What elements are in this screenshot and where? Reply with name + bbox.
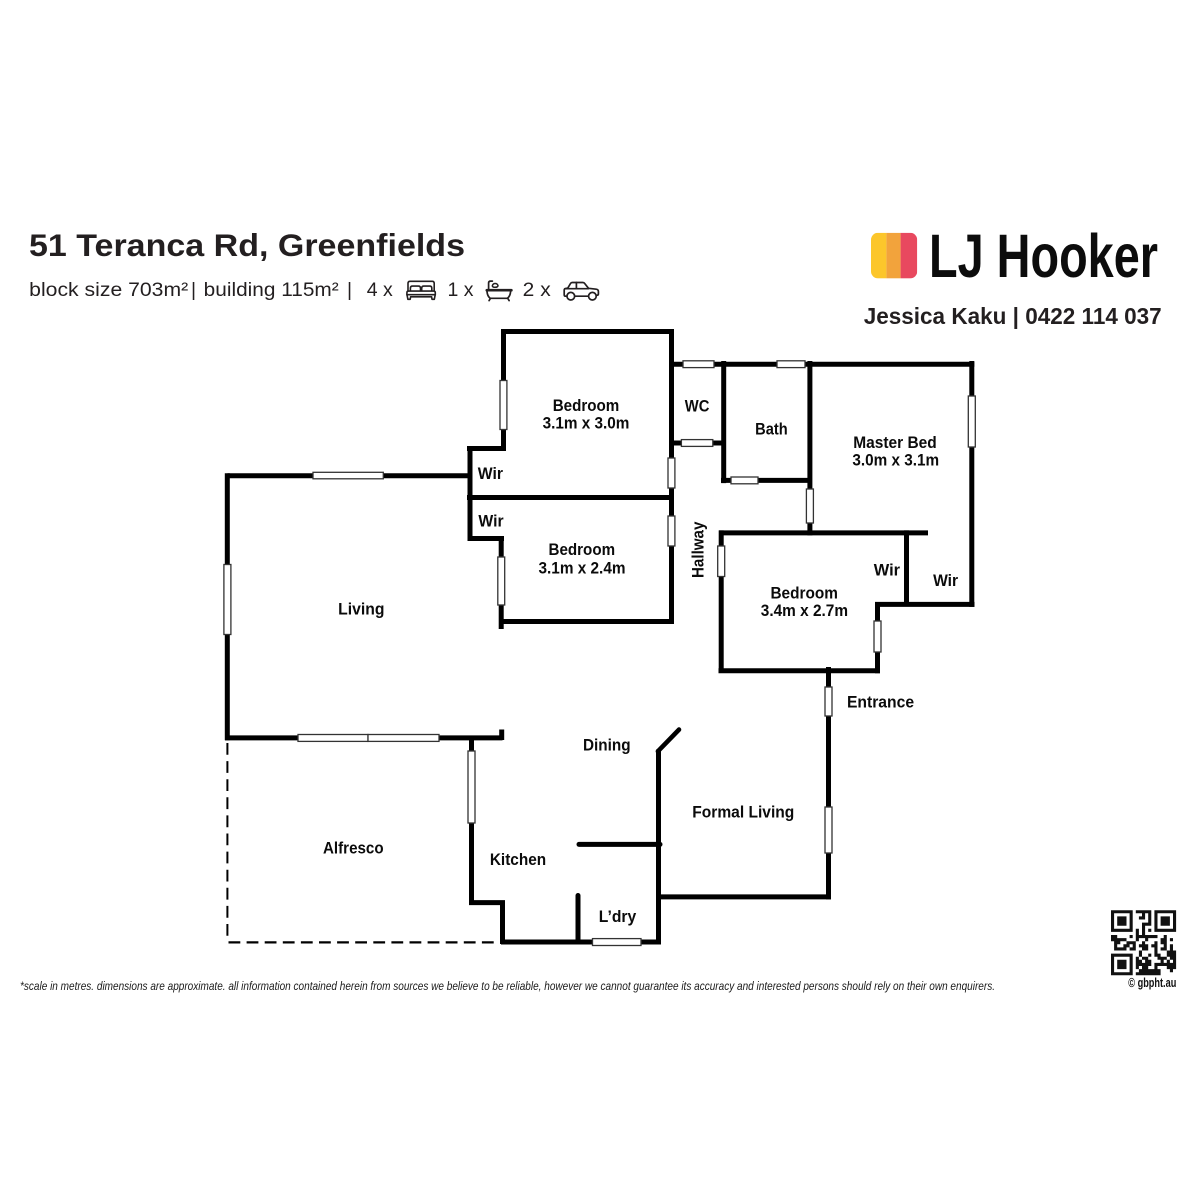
svg-text:Entrance: Entrance [847, 693, 914, 712]
svg-text:51 Teranca Rd, Greenfields: 51 Teranca Rd, Greenfields [29, 227, 465, 263]
svg-text:Wir: Wir [874, 561, 901, 580]
svg-text:2 x: 2 x [523, 279, 551, 301]
svg-text:Kitchen: Kitchen [490, 850, 546, 869]
svg-text:Jessica Kaku | 0422 114 037: Jessica Kaku | 0422 114 037 [864, 303, 1162, 329]
svg-text:Hallway: Hallway [688, 521, 707, 578]
svg-text:Bedroom: Bedroom [553, 396, 620, 415]
svg-text:Bedroom: Bedroom [770, 583, 838, 602]
svg-text:Alfresco: Alfresco [323, 838, 384, 857]
svg-text:3.0m x 3.1m: 3.0m x 3.1m [852, 450, 939, 469]
svg-text:4 x: 4 x [367, 279, 393, 301]
svg-text:|: | [347, 279, 352, 301]
svg-text:WC: WC [685, 396, 710, 415]
svg-text:Wir: Wir [933, 571, 958, 590]
svg-text:© gbpht.au: © gbpht.au [1128, 976, 1176, 990]
svg-text:LJ Hooker: LJ Hooker [929, 222, 1158, 290]
svg-text:3.4m x 2.7m: 3.4m x 2.7m [761, 601, 848, 620]
svg-text:Wir: Wir [478, 512, 504, 531]
svg-text:L’dry: L’dry [599, 907, 637, 926]
svg-text:Master Bed: Master Bed [853, 433, 937, 452]
svg-text:*scale in metres. dimensions a: *scale in metres. dimensions are approxi… [20, 980, 995, 993]
svg-text:Bedroom: Bedroom [549, 540, 616, 559]
svg-text:Dining: Dining [583, 735, 631, 754]
svg-text:Formal Living: Formal Living [692, 802, 794, 821]
svg-text:1 x: 1 x [448, 279, 474, 301]
svg-text:|: | [191, 279, 196, 301]
svg-text:3.1m x 3.0m: 3.1m x 3.0m [543, 414, 630, 433]
svg-text:Living: Living [338, 600, 384, 619]
svg-text:Bath: Bath [755, 420, 788, 439]
svg-text:3.1m x 2.4m: 3.1m x 2.4m [539, 559, 626, 578]
svg-text:building 115m²: building 115m² [204, 279, 340, 301]
svg-text:block size 703m²: block size 703m² [29, 279, 189, 301]
svg-text:Wir: Wir [478, 464, 504, 483]
